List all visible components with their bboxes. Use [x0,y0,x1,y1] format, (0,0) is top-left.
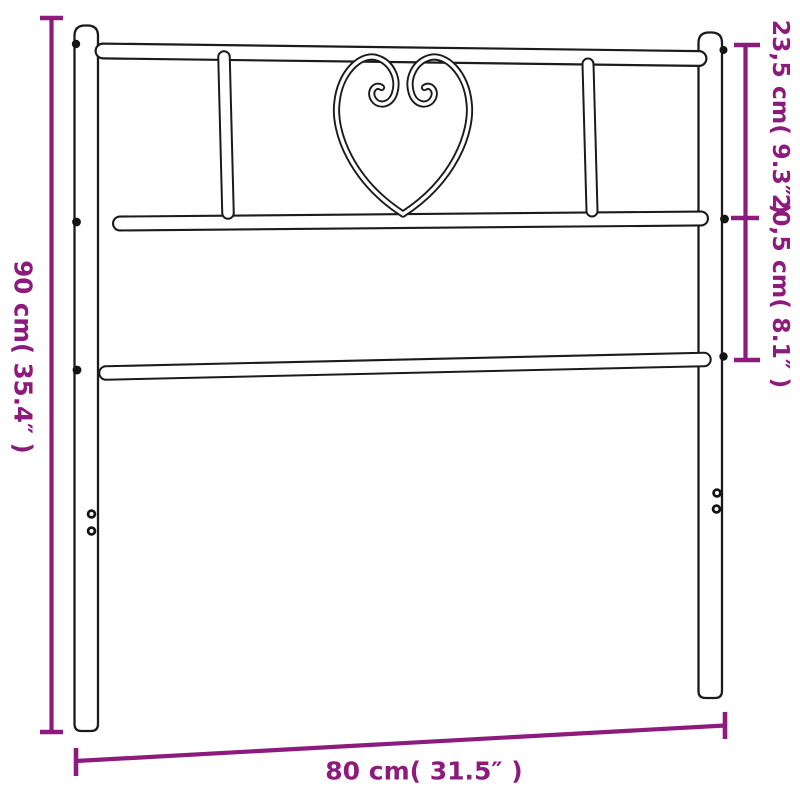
left-spindle [224,57,228,213]
bolt-dots [72,40,729,375]
upper-section-dimension-label: 23,5 cm( 9.3″ ) [768,20,792,215]
lower-rail [106,360,704,374]
right-spindle [588,64,592,211]
screw-holes [88,490,720,535]
dimension-marks [40,18,760,776]
heart-ornament-icon [336,57,469,214]
top-rail [103,51,699,59]
section-dimension-line [731,45,760,360]
middle-section-dimension-label: 20,5 cm( 8.1″ ) [768,194,792,389]
height-dimension-line [40,18,63,732]
headboard-frame [72,26,729,732]
left-post [75,26,99,732]
headboard-diagram [0,0,800,800]
middle-rail [120,219,701,224]
width-dimension-label: 80 cm( 31.5″ ) [325,759,522,784]
height-dimension-label: 90 cm( 35.4″ ) [10,260,35,454]
product-dimension-diagram: 90 cm( 35.4″ ) 23,5 cm( 9.3″ ) 20,5 cm( … [0,0,800,800]
